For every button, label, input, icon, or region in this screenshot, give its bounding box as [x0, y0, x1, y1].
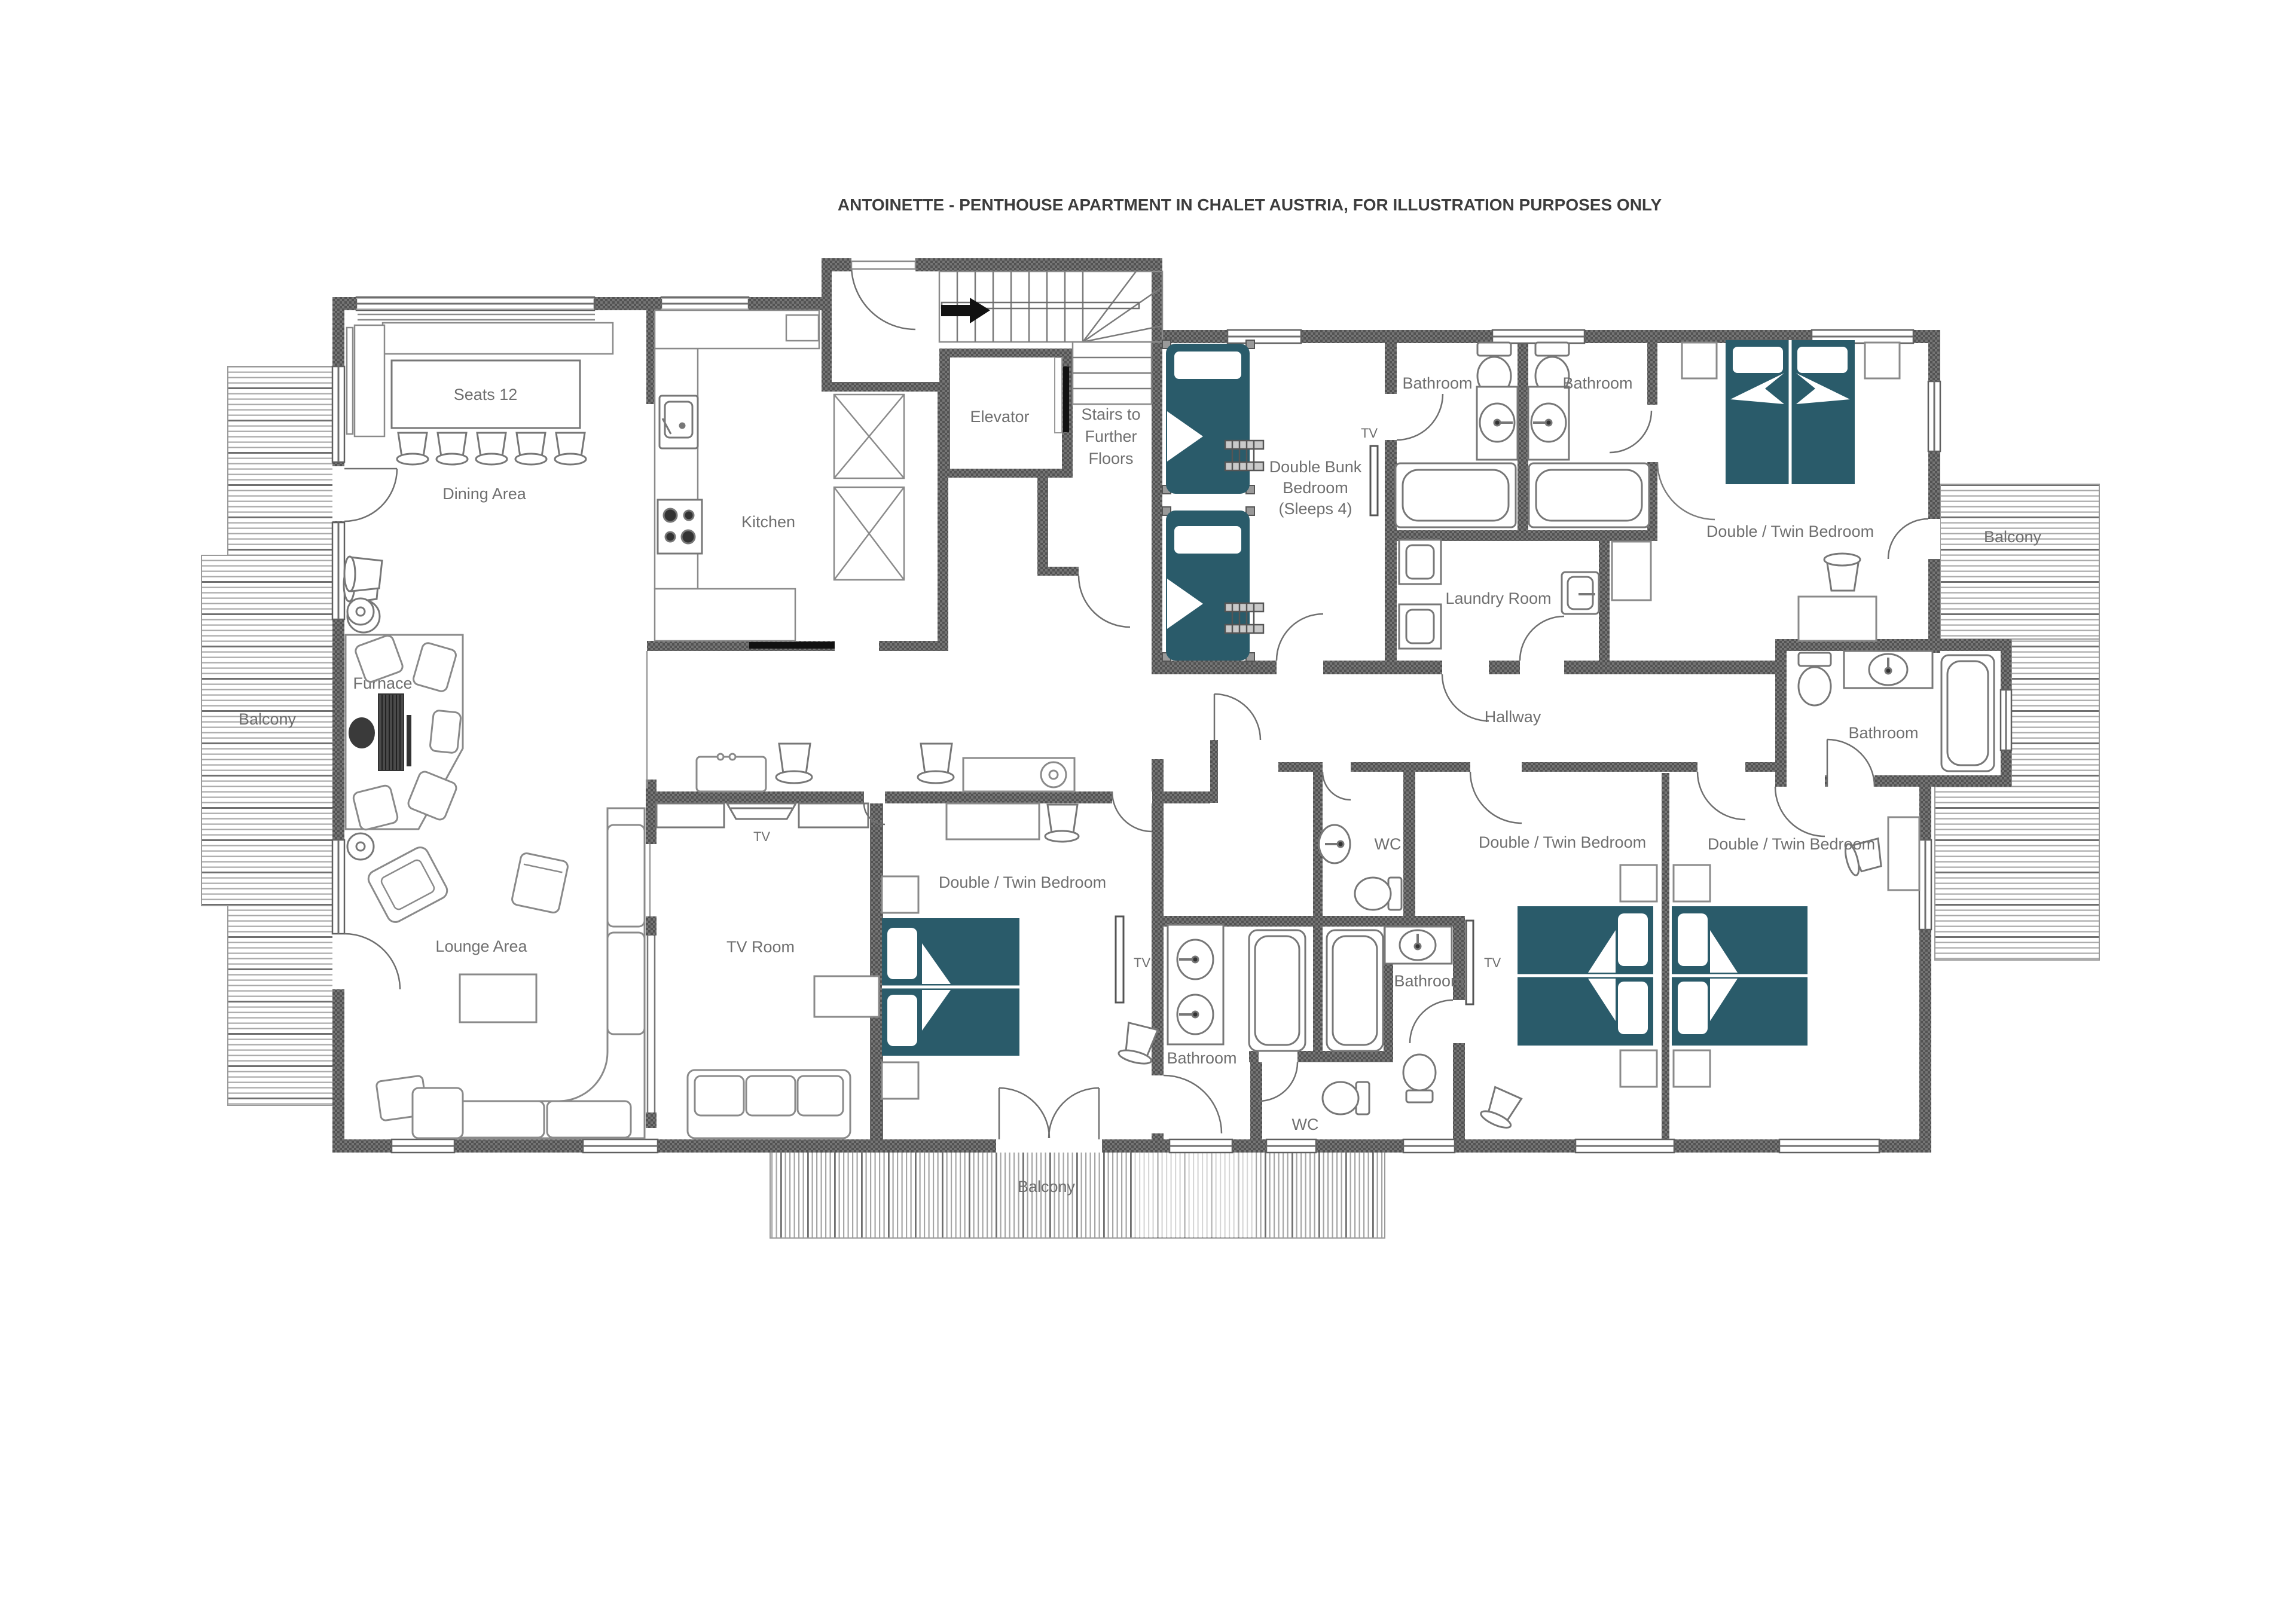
svg-text:Bathroom: Bathroom — [1394, 972, 1464, 990]
svg-text:TV: TV — [753, 829, 770, 844]
svg-text:Balcony: Balcony — [1984, 528, 2042, 546]
svg-text:Kitchen: Kitchen — [741, 513, 795, 531]
svg-text:WC: WC — [1375, 835, 1402, 853]
svg-text:Bathroom: Bathroom — [1848, 724, 1918, 742]
svg-text:Bedroom: Bedroom — [1283, 479, 1348, 497]
svg-text:TV: TV — [1361, 426, 1378, 441]
svg-text:TV Room: TV Room — [726, 938, 795, 956]
svg-text:Bathroom: Bathroom — [1167, 1049, 1236, 1067]
svg-text:Seats 12: Seats 12 — [454, 386, 518, 404]
svg-text:WC: WC — [1292, 1115, 1319, 1133]
svg-text:Double Bunk: Double Bunk — [1269, 458, 1362, 476]
svg-text:TV: TV — [1134, 955, 1150, 970]
svg-text:Balcony: Balcony — [239, 710, 297, 728]
svg-text:Balcony: Balcony — [1018, 1178, 1076, 1196]
svg-text:Double / Twin Bedroom: Double / Twin Bedroom — [1708, 835, 1875, 853]
svg-text:Hallway: Hallway — [1485, 708, 1541, 726]
svg-text:Bathroom: Bathroom — [1562, 374, 1632, 392]
svg-text:Stairs to: Stairs to — [1081, 405, 1140, 423]
svg-text:Double / Twin Bedroom: Double / Twin Bedroom — [1479, 833, 1646, 851]
svg-text:Laundry Room: Laundry Room — [1445, 589, 1551, 607]
svg-text:Bathroom: Bathroom — [1402, 374, 1472, 392]
svg-text:Floors: Floors — [1088, 450, 1133, 467]
svg-text:Double / Twin Bedroom: Double / Twin Bedroom — [1706, 522, 1874, 540]
svg-text:(Sleeps 4): (Sleeps 4) — [1278, 500, 1352, 518]
svg-text:TV: TV — [1484, 955, 1501, 970]
svg-text:Elevator: Elevator — [970, 408, 1029, 426]
svg-text:Double / Twin Bedroom: Double / Twin Bedroom — [939, 873, 1106, 891]
svg-text:Dining Area: Dining Area — [442, 485, 527, 503]
svg-text:Lounge Area: Lounge Area — [435, 937, 527, 955]
svg-text:Further: Further — [1085, 427, 1137, 445]
svg-text:ANTOINETTE - PENTHOUSE APARTME: ANTOINETTE - PENTHOUSE APARTMENT IN CHAL… — [838, 195, 1662, 214]
